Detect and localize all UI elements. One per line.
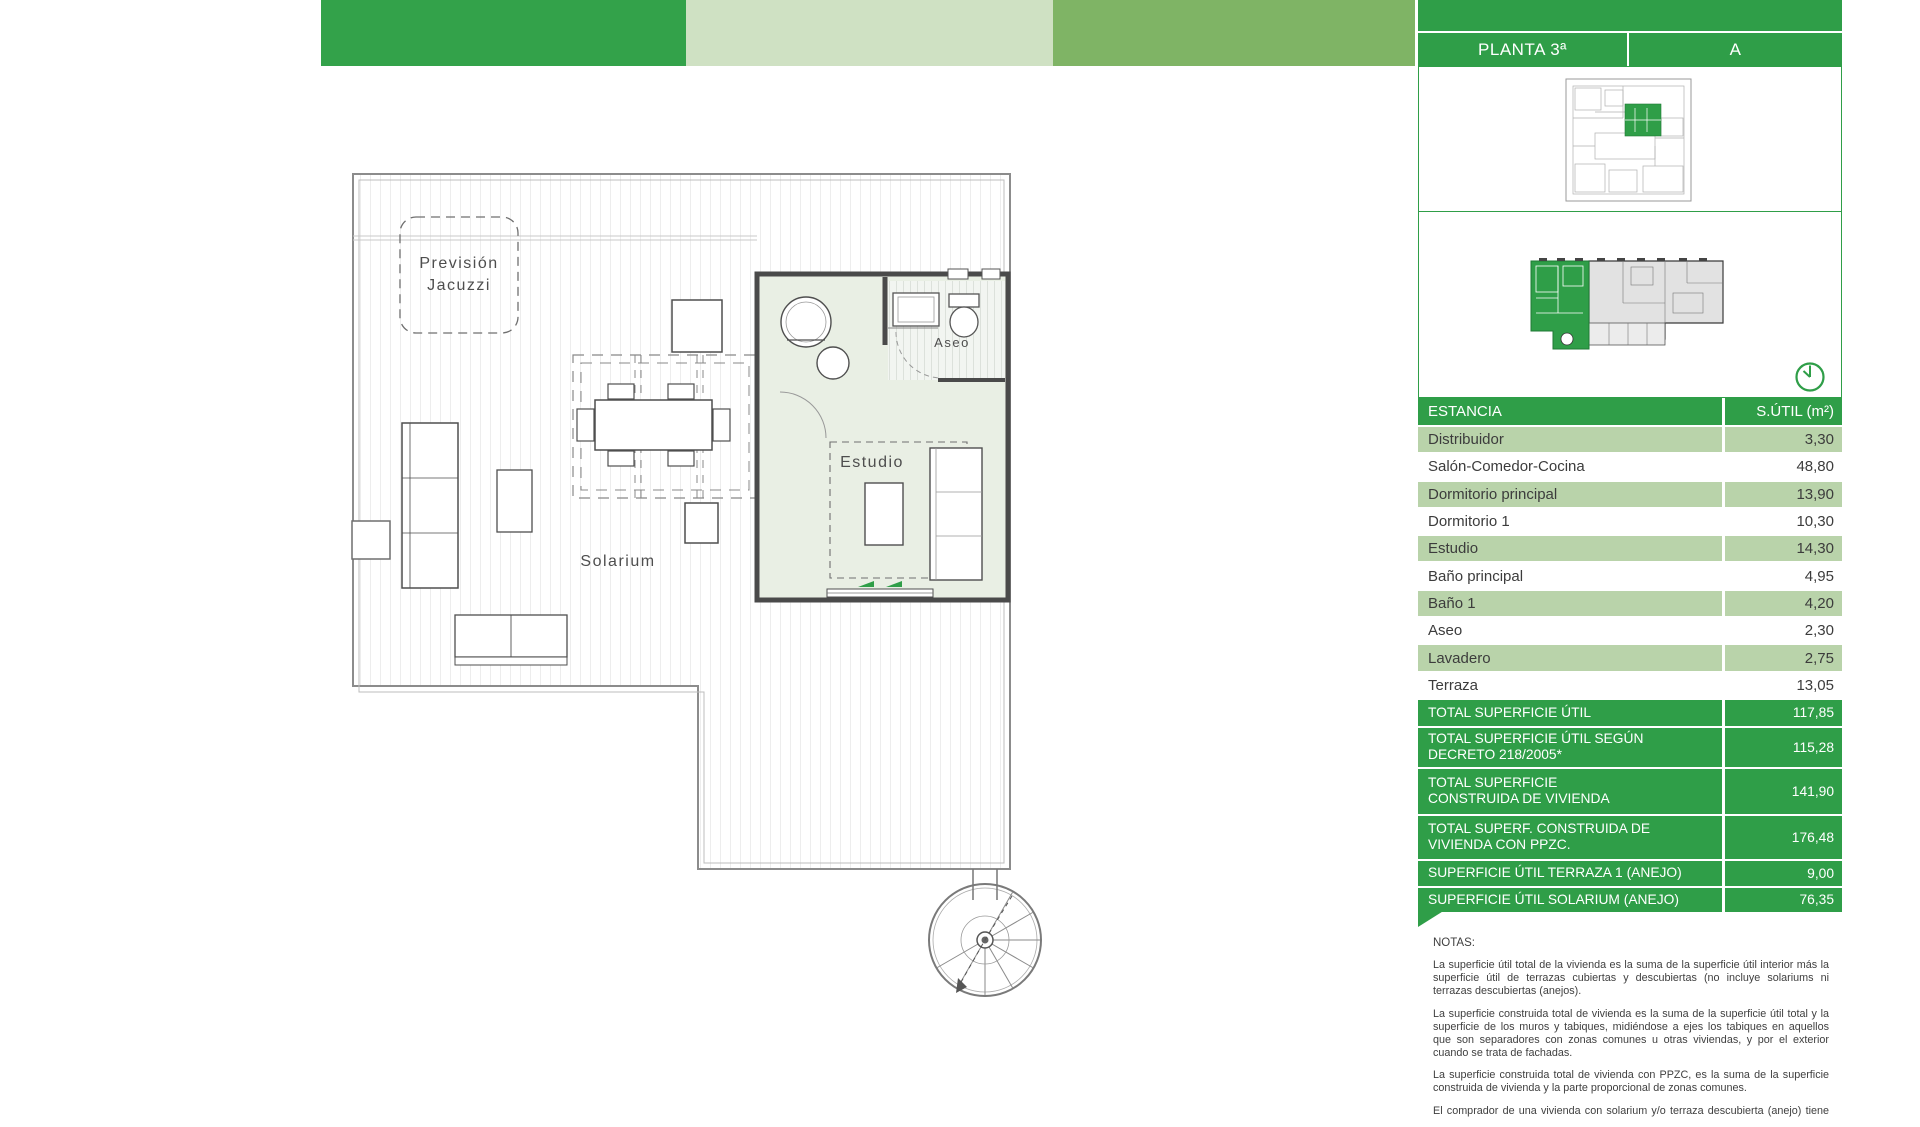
note-paragraph: La superficie construida total de vivien… — [1433, 1008, 1829, 1061]
room-area: 3,30 — [1725, 427, 1842, 452]
top-bar-mid-green — [1053, 0, 1415, 66]
site-plan-thumbnail — [1565, 78, 1692, 202]
wardrobe — [930, 448, 982, 580]
solarium-label: Solarium — [580, 553, 655, 570]
total-row: TOTAL SUPERFICIE ÚTIL SEGÚN DECRETO 218/… — [1418, 728, 1842, 769]
studio-building: Aseo Estudio — [757, 269, 1008, 600]
room-name: Estudio — [1418, 536, 1722, 561]
toilet — [949, 294, 979, 307]
room-name: Lavadero — [1418, 645, 1722, 670]
top-bar-pale-green — [686, 0, 1053, 66]
floor-plate-thumbnail — [1527, 253, 1727, 355]
room-area: 10,30 — [1725, 509, 1842, 534]
highlighted-unit-plate — [1531, 261, 1589, 349]
table-row: Baño 14,20 — [1418, 591, 1842, 618]
aseo-label: Aseo — [934, 335, 970, 350]
note-paragraph: La superficie construida total de vivien… — [1433, 1069, 1829, 1095]
room-area: 13,05 — [1725, 673, 1842, 698]
table-row: Estudio14,30 — [1418, 536, 1842, 563]
room-area: 48,80 — [1725, 454, 1842, 479]
desk — [865, 483, 903, 545]
area-table: ESTANCIA S.ÚTIL (m²) Distribuidor3,30 Sa… — [1418, 398, 1842, 914]
sink — [893, 293, 939, 326]
floor-plan: Previsión Jacuzzi Solarium — [330, 150, 1070, 1030]
room-name: Dormitorio 1 — [1418, 509, 1722, 534]
table-tail — [1418, 910, 1445, 927]
notes-block: NOTAS: La superficie útil total de la vi… — [1433, 936, 1829, 1127]
aseo-room: Aseo — [885, 269, 1005, 380]
total-row: TOTAL SUPERF. CONSTRUIDA DE VIVIENDA CON… — [1418, 816, 1842, 861]
room-area: 13,90 — [1725, 482, 1842, 507]
prevision-label-line2: Jacuzzi — [427, 277, 491, 294]
room-area: 14,30 — [1725, 536, 1842, 561]
room-name: Aseo — [1418, 618, 1722, 643]
table-row: Salón-Comedor-Cocina48,80 — [1418, 454, 1842, 481]
table-row: Aseo2,30 — [1418, 618, 1842, 645]
floor-label: PLANTA 3ª — [1418, 33, 1627, 66]
room-name: Terraza — [1418, 673, 1722, 698]
table-row: Dormitorio 110,30 — [1418, 509, 1842, 536]
table-row: Baño principal4,95 — [1418, 563, 1842, 590]
room-name: Baño principal — [1418, 563, 1722, 588]
round-table — [817, 347, 849, 379]
room-area: 4,20 — [1725, 591, 1842, 616]
spiral-staircase — [929, 869, 1041, 996]
table-row: Dormitorio principal13,90 — [1418, 482, 1842, 509]
total-row: SUPERFICIE ÚTIL SOLARIUM (ANEJO)76,35 — [1418, 888, 1842, 914]
floorplan-brochure-page: { "header": { "planta_label": "PLANTA 3ª… — [0, 0, 1920, 1080]
note-paragraph: El comprador de una vivienda con solariu… — [1433, 1105, 1829, 1118]
clock-icon — [1793, 360, 1827, 394]
room-name: Baño 1 — [1418, 591, 1722, 616]
room-name: Dormitorio principal — [1418, 482, 1722, 507]
room-area: 2,30 — [1725, 618, 1842, 643]
room-area: 4,95 — [1725, 563, 1842, 588]
note-paragraph: La superficie útil total de la vivienda … — [1433, 959, 1829, 999]
room-name: Distribuidor — [1418, 427, 1722, 452]
table-header-row: ESTANCIA S.ÚTIL (m²) — [1418, 398, 1842, 427]
table-row: Lavadero2,75 — [1418, 645, 1842, 672]
room-name: Salón-Comedor-Cocina — [1418, 454, 1722, 479]
top-bar-dark-green — [321, 0, 686, 66]
room-area: 2,75 — [1725, 645, 1842, 670]
total-row: TOTAL SUPERFICIE CONSTRUIDA DE VIVIENDA1… — [1418, 769, 1842, 816]
total-row: SUPERFICIE ÚTIL TERRAZA 1 (ANEJO)9,00 — [1418, 861, 1842, 888]
total-row: TOTAL SUPERFICIE ÚTIL117,85 — [1418, 700, 1842, 728]
prevision-label-line1: Previsión — [419, 255, 498, 272]
estudio-label: Estudio — [840, 454, 904, 471]
column-header-estancia: ESTANCIA — [1418, 398, 1722, 425]
column-header-sutil: S.ÚTIL (m²) — [1725, 398, 1842, 425]
unit-label: A — [1629, 33, 1842, 66]
notes-title: NOTAS: — [1433, 936, 1829, 950]
table-row: Distribuidor3,30 — [1418, 427, 1842, 454]
table-row: Terraza13,05 — [1418, 673, 1842, 700]
